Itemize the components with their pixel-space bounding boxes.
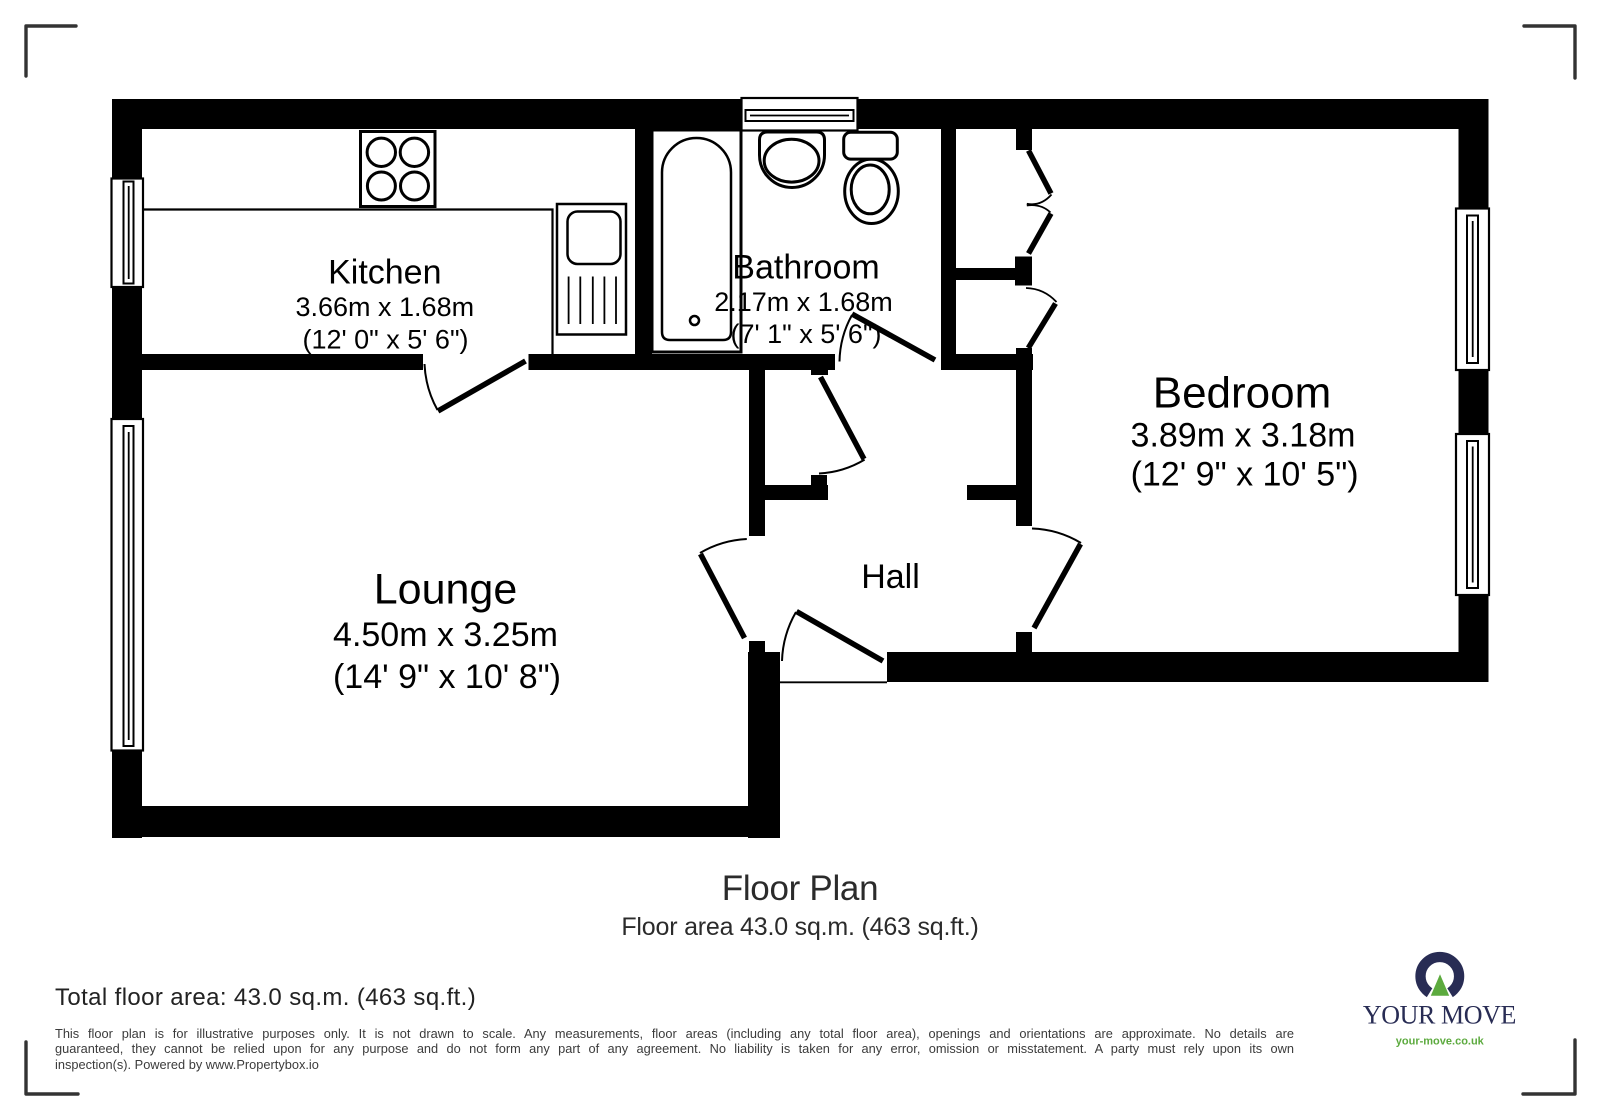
svg-text:Hall: Hall [861,558,920,596]
svg-text:2.17m x 1.68m: 2.17m x 1.68m [714,287,893,317]
svg-text:Lounge: Lounge [374,566,518,614]
svg-text:Bedroom: Bedroom [1153,369,1332,418]
svg-text:(12' 0" x 5' 6"): (12' 0" x 5' 6") [302,324,468,354]
svg-text:Total floor area: 43.0 sq.m. (: Total floor area: 43.0 sq.m. (463 sq.ft.… [55,984,476,1011]
svg-text:Floor area 43.0 sq.m. (463 sq.: Floor area 43.0 sq.m. (463 sq.ft.) [621,913,978,941]
svg-text:YOUR MOVE: YOUR MOVE [1363,1001,1516,1030]
svg-text:3.66m x 1.68m: 3.66m x 1.68m [296,292,475,322]
svg-text:(12' 9" x 10' 5"): (12' 9" x 10' 5") [1131,456,1359,494]
svg-text:(7' 1" x 5' 6"): (7' 1" x 5' 6") [730,319,881,349]
svg-text:Kitchen: Kitchen [328,254,441,292]
svg-text:your-move.co.uk: your-move.co.uk [1396,1035,1485,1047]
svg-text:Floor Plan: Floor Plan [722,869,879,908]
svg-text:3.89m x 3.18m: 3.89m x 3.18m [1131,417,1356,455]
svg-text:Bathroom: Bathroom [732,249,879,287]
svg-text:4.50m x 3.25m: 4.50m x 3.25m [333,616,558,654]
svg-text:(14' 9" x 10' 8"): (14' 9" x 10' 8") [333,658,561,696]
